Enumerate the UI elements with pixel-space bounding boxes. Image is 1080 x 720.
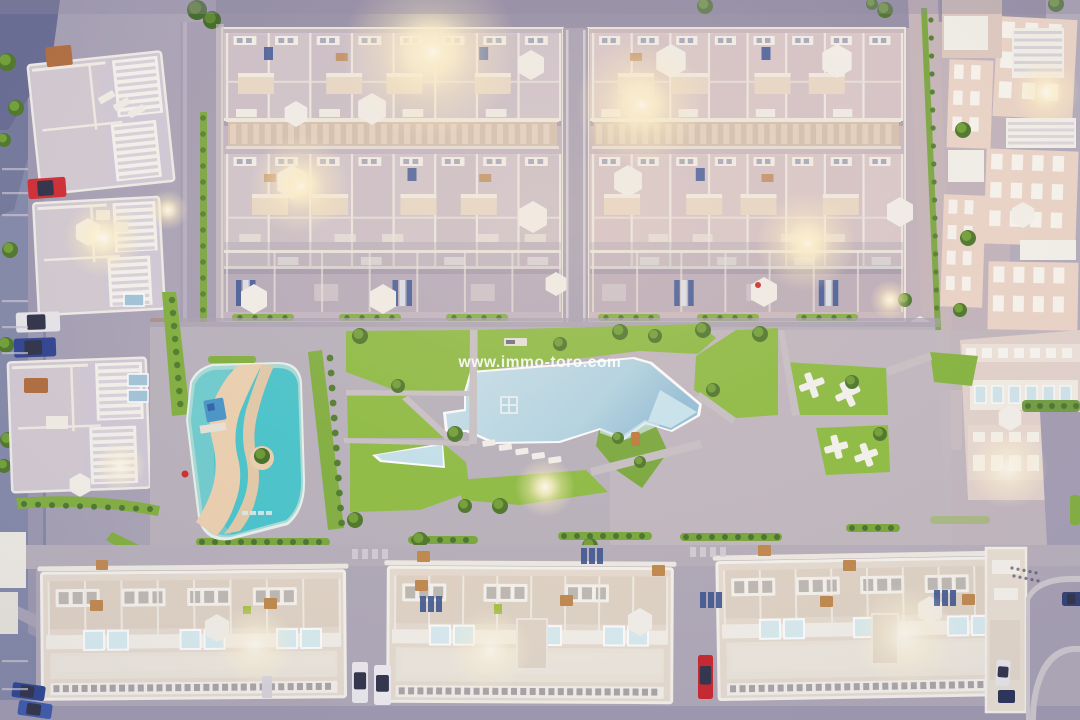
svg-text:www.immo-toro.com: www.immo-toro.com xyxy=(458,354,622,371)
